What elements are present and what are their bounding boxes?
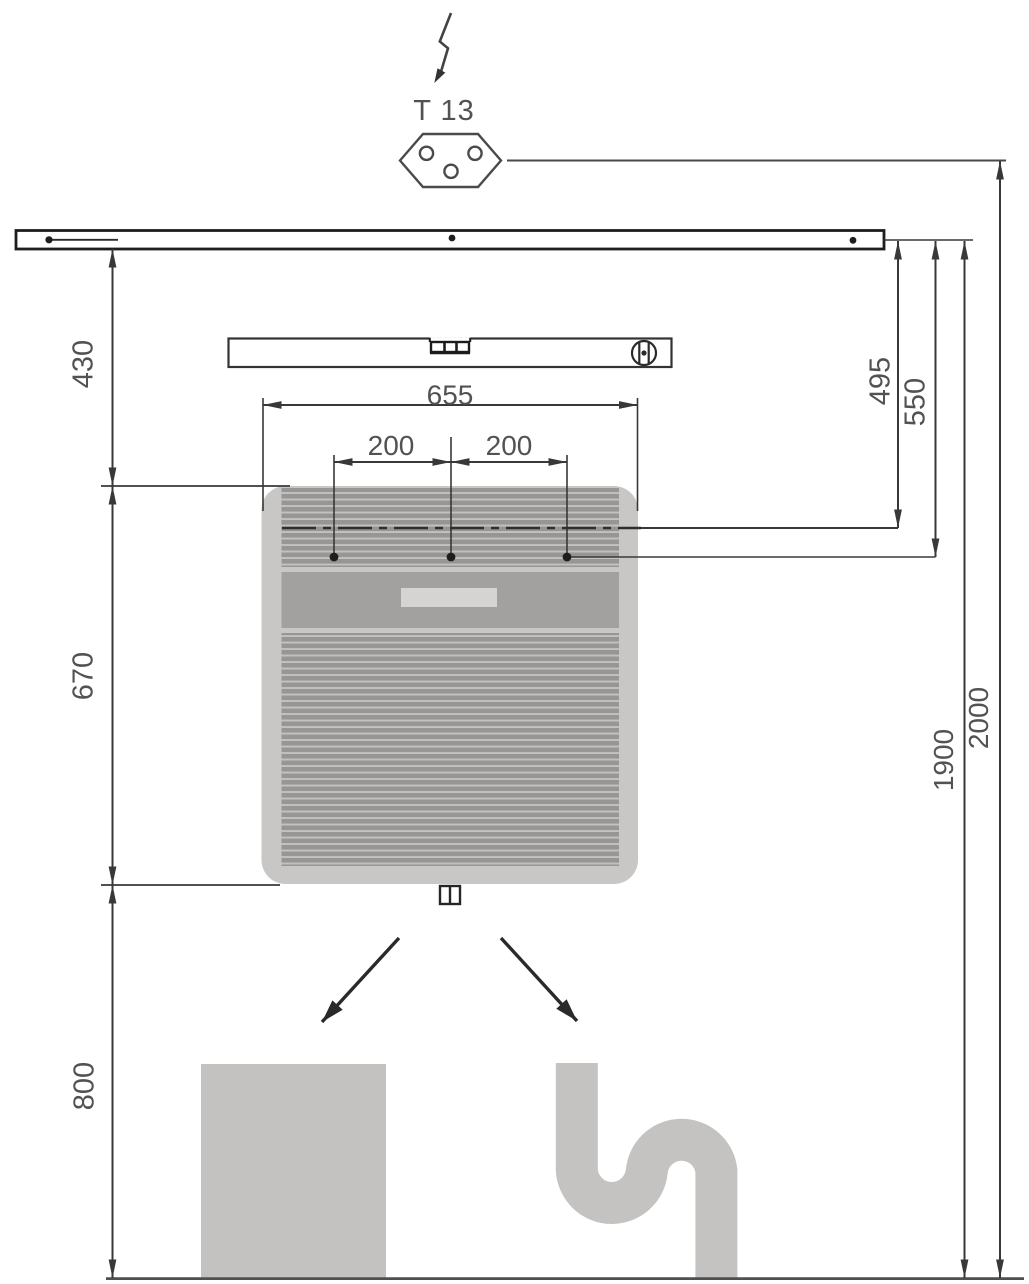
svg-text:200: 200 [368,430,415,461]
svg-text:550: 550 [900,378,932,426]
svg-text:2000: 2000 [963,687,994,749]
svg-text:800: 800 [69,1062,101,1110]
svg-text:670: 670 [68,652,100,700]
svg-text:655: 655 [427,380,474,411]
svg-text:495: 495 [865,357,897,405]
svg-text:T 13: T 13 [413,95,475,127]
svg-text:200: 200 [486,430,533,461]
svg-text:1900: 1900 [928,729,959,791]
svg-text:430: 430 [68,340,100,388]
